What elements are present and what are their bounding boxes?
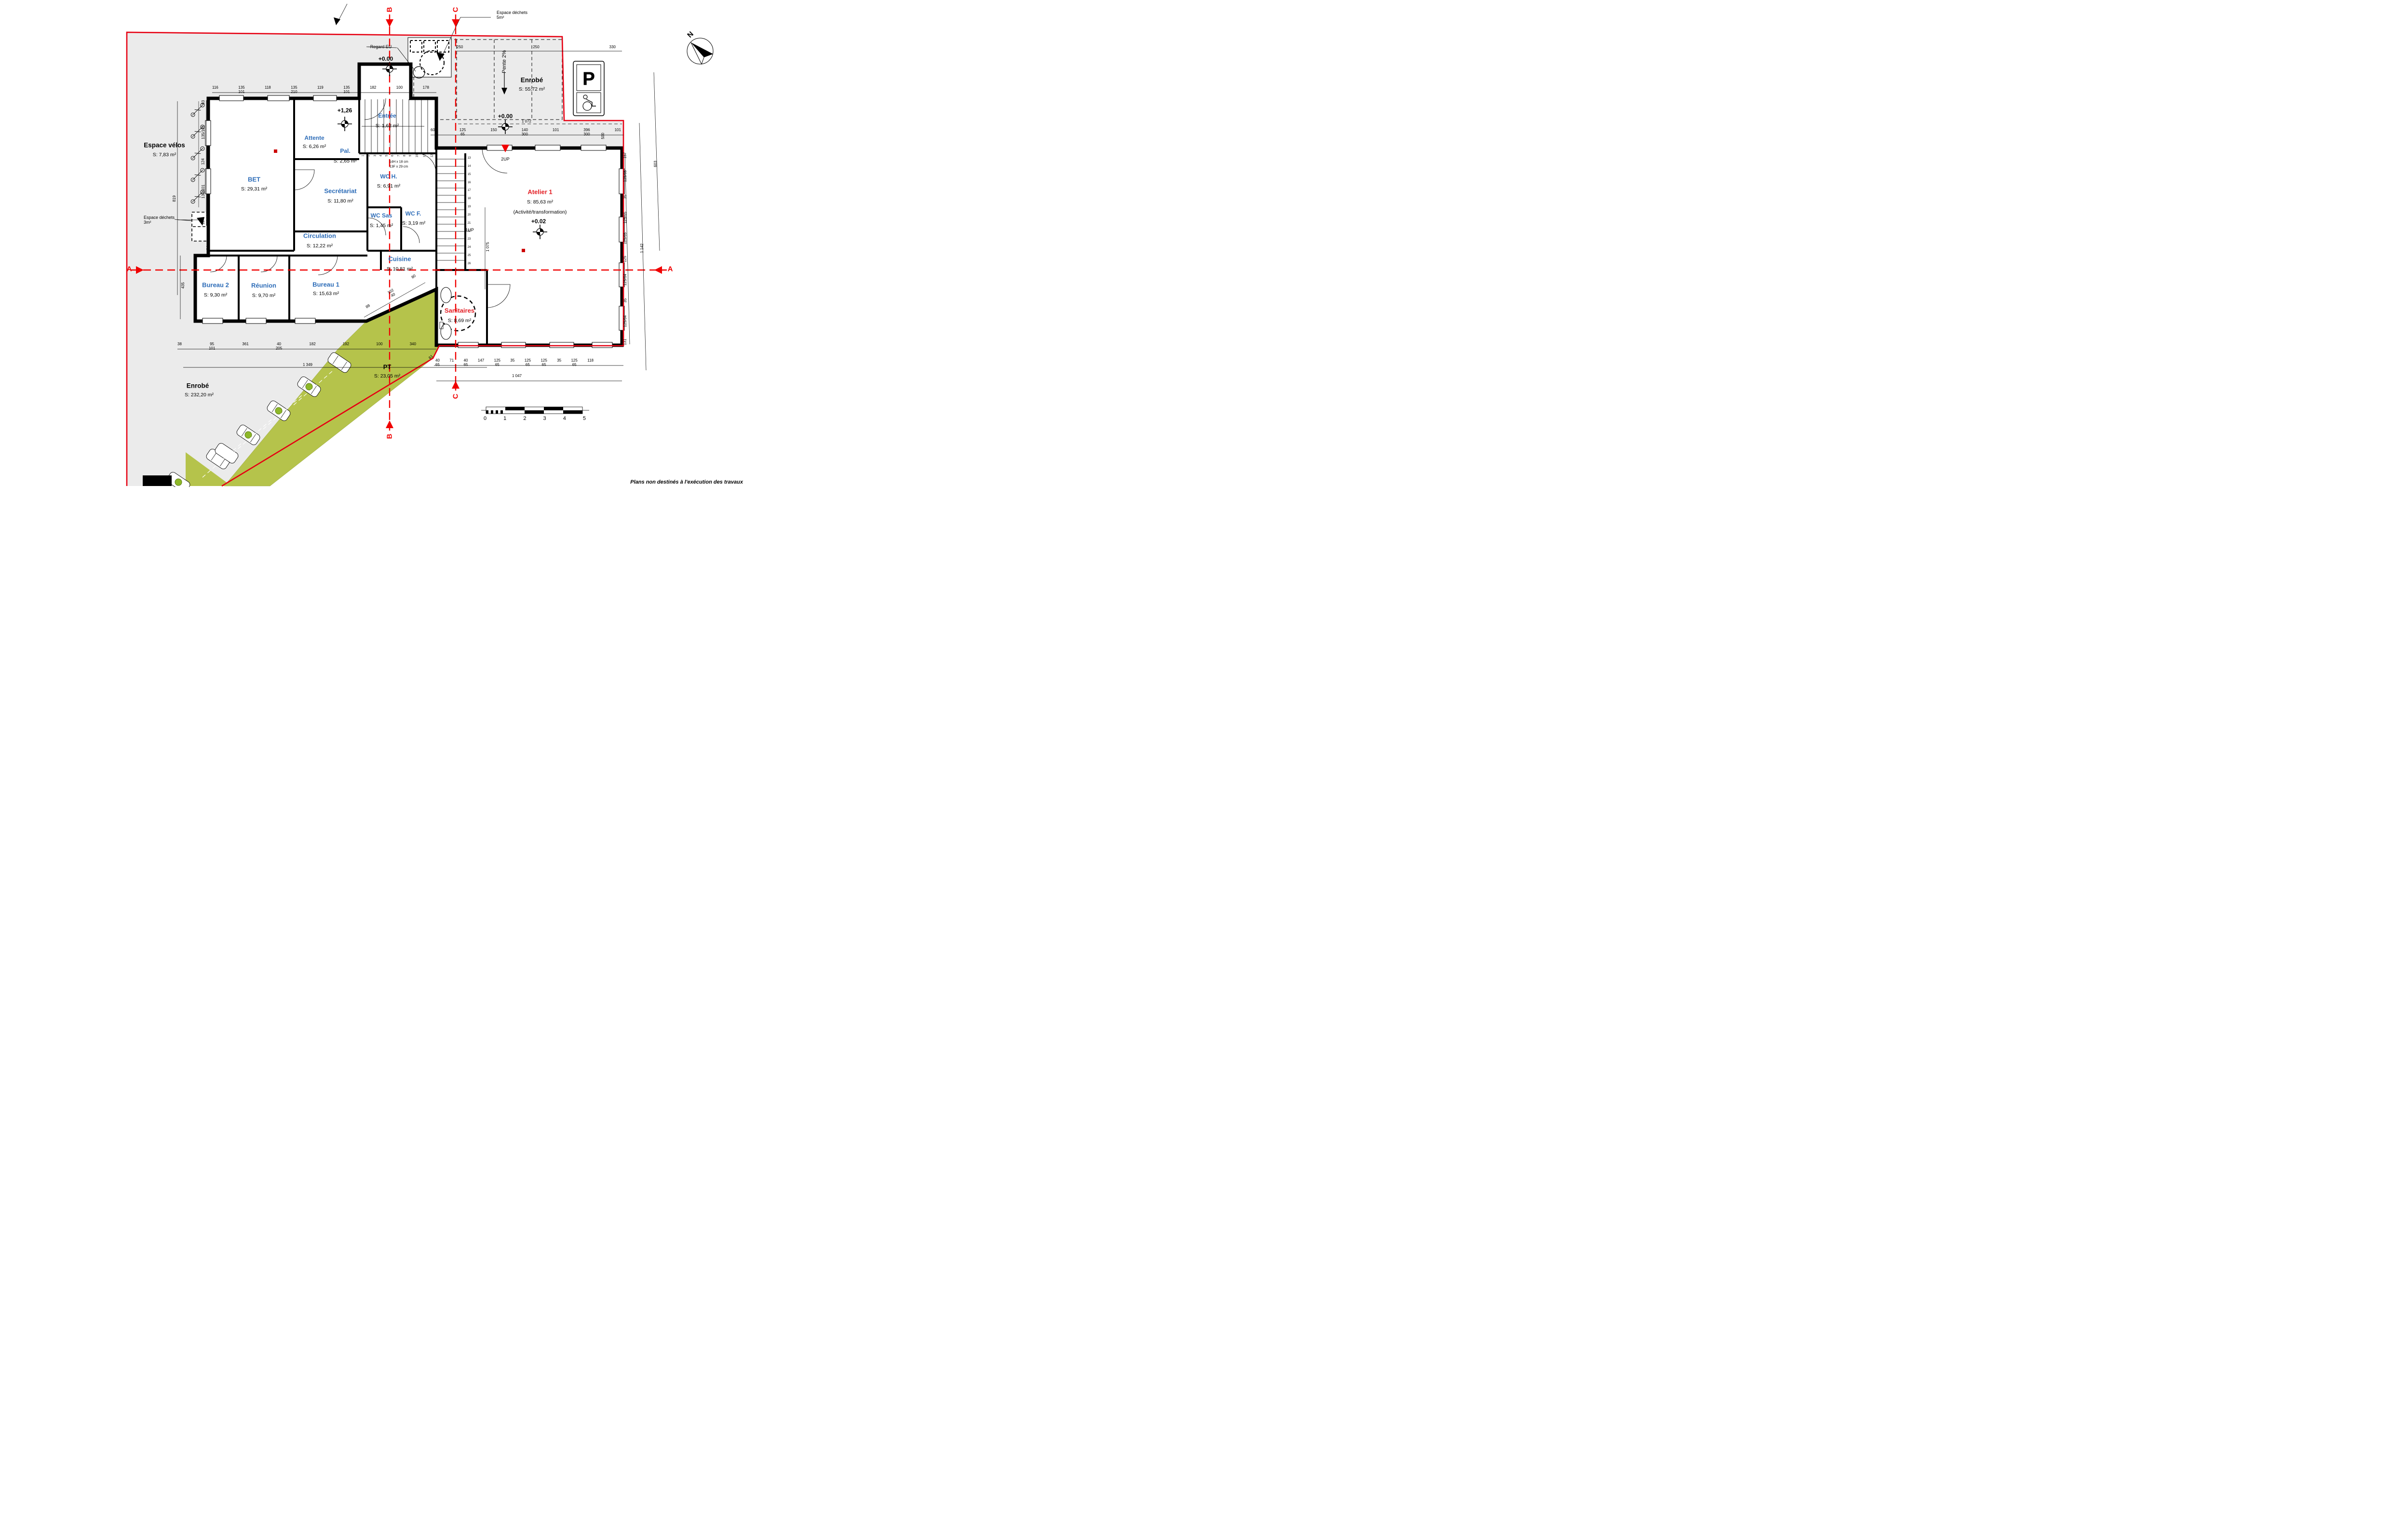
dim-label: 6 [392,155,394,156]
dim-label: 20 [468,214,471,216]
room-sanitaires-area: S: 8,69 m² [448,318,471,324]
dim-label: 125 [623,256,628,262]
dim-label: 124 [202,159,206,165]
dim-label: 3 [374,155,377,156]
dim-label: 3 [543,416,546,421]
level-0-top: +0.00 [378,55,393,62]
dims-left: 83135/101124135/101124 [200,100,207,223]
dims-mid-total: 1 072 [522,120,531,124]
dim-label: 13 [468,157,471,160]
dim-label: 18 [468,197,471,200]
dim-1075: 1 075 [486,242,490,252]
stair-tread-numbers-2: 1314151617181920212223242526 [467,157,472,265]
dim-603: 603 [654,161,658,167]
dim-label: 60 [431,128,435,136]
dim-label: 182 [309,342,315,351]
zone-pt: PT [383,364,392,371]
room-wc-sas: WC Sas [371,212,392,219]
dim-label: 25 [468,254,471,257]
dims-right: 157125/6535125/65125/65125125/6435125/64… [621,153,630,344]
dim-label: 125/65 [623,232,628,244]
label-dechets3: Espace déchets 3m² [144,215,175,225]
dim-label: 192 [343,342,349,351]
dims-left-total: 819 [173,195,177,202]
room-bureau1-area: S: 15,63 m² [313,291,339,297]
dim-label: 135 101 [343,86,350,94]
dim-label: 9 [409,155,412,156]
dim-label: 135/101 [206,212,211,226]
dim-label: 101 [615,128,621,136]
dims-bottom-right-total: 1 047 [512,374,522,378]
dims-bottom-left: 3895 10136140 205182192100340 [177,342,416,351]
dim-label: 17 [468,189,471,192]
dim-500: 500 [601,133,606,139]
label-dechets5: Espace déchets 5m² [497,10,527,20]
dim-label: 101 [553,128,559,136]
dim-label: 250 [533,45,539,50]
room-bureau2-area: S: 9,30 m² [204,292,227,298]
dim-label: 178 [423,86,429,94]
dim-label: 5 [386,155,389,156]
room-bureau1: Bureau 1 [312,281,339,288]
parking-sign-icon: P [573,61,604,116]
dim-label: 125/65 [623,170,628,182]
dim-label: 35 [557,359,561,367]
room-atelier-area: S: 85,63 m² [527,199,553,205]
dim-label: 38 [177,342,182,351]
dim-label: 71 [449,359,454,367]
dim-label: 125/65 [623,212,628,223]
stair-note-2: 13F x 29 cm [390,165,408,169]
section-label-c-top: C [452,7,460,13]
dim-label: 26 [468,262,471,265]
dims-left-total-2: 435 [181,282,186,288]
dim-label: 1 [362,155,365,156]
dim-label: 125 65 [541,359,547,367]
site-velos-area: S: 7,83 m² [153,152,176,158]
dims-parking: 250250330 [457,45,616,50]
dim-label: 0 [484,416,487,421]
dim-label: 15 [468,173,471,176]
dim-label: 125/64 [623,274,628,285]
dim-label: 140 300 [522,128,528,136]
room-circulation-area: S: 12,22 m² [307,243,333,249]
dim-label: 125/64 [623,315,628,327]
stair-up2: 2UP [501,157,510,162]
plan-drawing: P [0,0,746,487]
dim-label: 116 [212,86,218,94]
dim-label: 10 [416,154,419,158]
room-wc-f: WC F. [405,210,421,217]
site-velos: Espace vélos [144,142,185,149]
label-regard-eu: Regard EU [370,44,392,49]
room-cuisine-area: S: 10,81 m² [387,266,413,272]
dim-label: 135/101 [202,185,206,199]
scale-bar-numbers: 012345 [484,416,586,421]
dim-label: 5 [583,416,586,421]
label-pente: Pente 2% [501,50,507,73]
dim-label: 16 [468,181,471,184]
dim-label: 12 [431,154,434,158]
equipment-mark-1 [274,149,277,153]
section-label-b-top: B [386,7,394,13]
north-arrow-icon [687,38,713,64]
room-pal: Pal. [340,148,350,154]
zone-pt-area: S: 23,05 m² [374,373,400,379]
dim-label: 19 [468,205,471,208]
dim-label: 40 205 [276,342,282,351]
stair-note-1: 14H x 18 cm [389,161,408,164]
room-bet-area: S: 29,31 m² [241,186,267,192]
dim-label: 7 [397,155,400,156]
dim-label: 118 [587,359,594,367]
room-attente-area: S: 6,26 m² [303,144,326,149]
dim-label: 119 [317,86,324,94]
dim-label: 250 [457,45,463,50]
room-cuisine: Cuisine [389,256,411,263]
dim-label: 14 [468,165,471,168]
dim-label: 40 65 [464,359,468,367]
room-secretariat: Secrétariat [324,188,356,195]
dim-label: 83 [202,100,206,105]
room-bet: BET [248,176,260,183]
dim-label: 150 [490,128,497,136]
room-circulation: Circulation [303,232,336,240]
dim-label: 4 [379,155,382,156]
level-palier: +1,26 [338,107,352,114]
room-attente: Attente [304,135,324,141]
dim-label: 147 [478,359,484,367]
section-label-c-bottom: C [452,394,460,399]
dim-label: 4 [563,416,566,421]
dim-label: 125 65 [525,359,531,367]
dims-top: 116135 101118135 210119135 101182100178 [212,86,429,94]
room-wc-sas-area: S: 1,45 m² [370,223,393,229]
dims-bottom-right: 40 657140 65147125 6535125 65125 6535125… [435,359,594,367]
dim-label: 84 [206,245,211,250]
dim-label: 330 [609,45,616,50]
dim-label: 35 [623,195,628,199]
dim-label: 11 [423,154,426,157]
dim-label: 1 [503,416,506,421]
room-atelier: Atelier 1 [527,189,552,196]
dim-label: 396 300 [583,128,590,136]
dim-label: 118 [265,86,271,94]
dim-label: 23 [468,238,471,241]
site-enrobe1-area: S: 55,72 m² [519,86,545,92]
dim-label: 100 [396,86,403,94]
dim-label: 2 [523,416,526,421]
level-0-parking: +0.00 [498,113,513,120]
room-wc-h: WC H. [380,173,397,180]
dim-label: 35 [623,298,628,303]
dim-label: 135 210 [291,86,297,94]
footer-disclaimer: Plans non destinés à l'exécution des tra… [630,479,743,485]
dims-mid: 60125 65150140 300101396 300101 [431,128,621,136]
dim-label: 135 101 [238,86,244,94]
dim-label: 182 [370,86,376,94]
dim-label: 361 [242,342,248,351]
dim-label: 135/101 [202,125,206,139]
dims-right-total: 1 142 [640,243,645,253]
room-reunion: Réunion [251,282,276,289]
site-enrobe1: Enrobé [521,77,543,84]
room-entree-area: S: 1,62 m² [376,123,399,129]
section-label-b-bottom: B [386,434,394,439]
room-atelier-sub: (Activité/transformation) [514,209,567,215]
section-label-a-left: A [127,265,132,273]
site-enrobe2-area: S: 232,20 m² [185,392,214,398]
section-label-a-right: A [668,265,673,273]
room-bureau2: Bureau 2 [202,282,229,289]
dim-label: 125 65 [571,359,577,367]
room-secretariat-area: S: 11,80 m² [327,198,353,204]
dim-label: 35 [510,359,514,367]
dim-label: 2 [368,155,371,156]
dim-label: 21 [468,222,471,225]
dim-label: 340 [410,342,416,351]
dim-label: 125 65 [459,128,466,136]
dim-label: 8 [404,155,406,156]
dims-bottom-left-total: 1 349 [303,363,312,367]
room-sanitaires: Sanitaires [445,307,474,314]
dim-label: 131 [623,339,628,345]
equipment-mark-2 [522,249,525,252]
site-enrobe2: Enrobé [187,382,209,390]
dim-label: 157 [623,152,628,159]
stair-tread-numbers-1: 123456789101112 [363,154,434,157]
dim-label: 24 [468,246,471,249]
room-wc-f-area: S: 3,19 m² [402,220,425,226]
dim-label: 95 101 [209,342,215,351]
room-entree: Entrée [378,112,396,119]
room-pal-area: S: 2,65 m² [334,158,357,164]
dims-left-2: 135/10184 [204,217,212,250]
room-reunion-area: S: 9,70 m² [252,293,275,298]
svg-text:P: P [582,69,595,89]
scale-bar [481,407,589,414]
dim-label: 125 65 [494,359,500,367]
dim-label: 100 [376,342,382,351]
dim-label: 40 65 [435,359,440,367]
room-wc-h-area: S: 6,91 m² [377,183,400,189]
level-atelier: +0.02 [531,218,546,225]
floor-plan-page: P B C B C A A N Attente S: 6,26 m² Pal. … [0,0,746,487]
dim-label: 22 [468,230,471,233]
